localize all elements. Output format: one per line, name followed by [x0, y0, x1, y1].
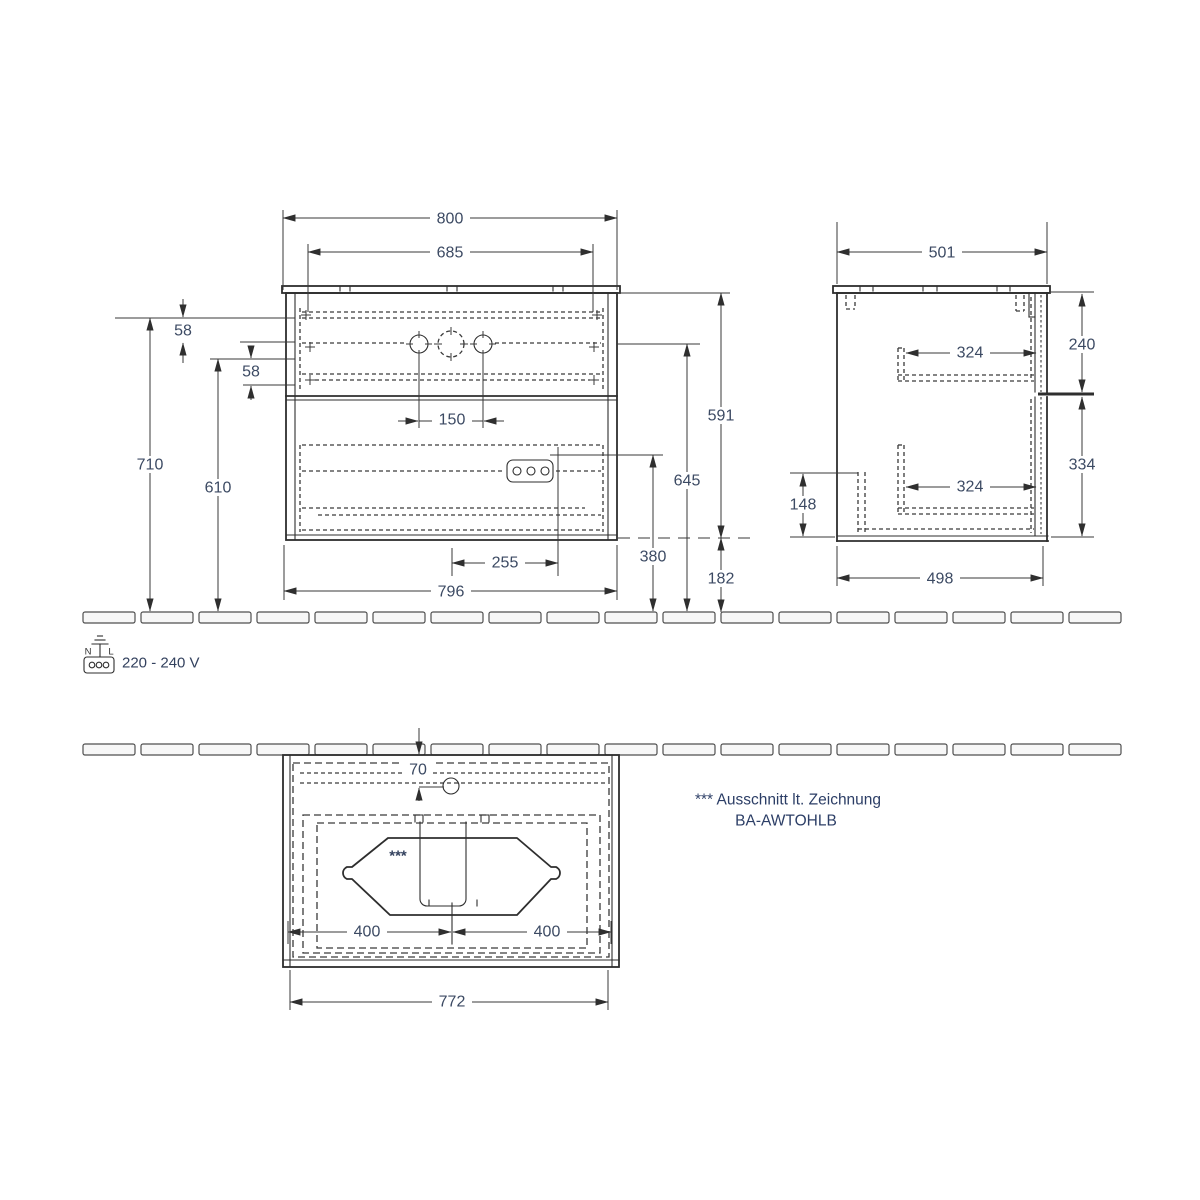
dim-top-front-width: 772	[439, 994, 466, 1011]
dim-front-socket-offset: 255	[492, 555, 519, 572]
dim-front-height-carcass: 591	[708, 408, 735, 425]
power-supply-symbol: N L 220 - 240 V	[84, 636, 200, 673]
dim-front-carcass-width: 796	[438, 584, 465, 601]
dim-front-offset-top: 58	[174, 323, 192, 340]
side-upper-runner	[898, 297, 1034, 381]
internal-socket	[507, 460, 553, 482]
side-view-dimensions	[790, 222, 1094, 586]
dim-side-depth-bottom: 498	[927, 571, 954, 588]
side-view	[790, 286, 1094, 541]
dim-front-tap-spacing: 150	[439, 412, 466, 429]
dim-front-height-inner: 610	[205, 480, 232, 497]
dim-side-lower-height: 334	[1069, 457, 1096, 474]
dim-side-depth-top: 501	[929, 245, 956, 262]
dim-front-height-total: 710	[137, 457, 164, 474]
floor-tile-strip	[83, 612, 1121, 623]
terminal-l-label: L	[108, 647, 113, 658]
side-countertop	[833, 286, 1050, 293]
technical-drawing-page: N L 220 - 240 V 800	[0, 0, 1200, 1200]
cutout-note: *** Ausschnitt lt. Zeichnung BA-AWTOHLB	[695, 792, 881, 830]
socket-plug-icon	[84, 657, 114, 673]
dim-top-center-left: 400	[354, 924, 381, 941]
dim-front-bottom-gap: 182	[708, 571, 735, 588]
dim-top-tap-offset: 70	[409, 762, 427, 779]
dim-side-upper-height: 240	[1069, 337, 1096, 354]
terminal-n-label: N	[85, 647, 92, 658]
dim-front-offset-mid: 58	[242, 364, 260, 381]
top-tap-hole	[443, 778, 459, 794]
front-countertop	[282, 286, 620, 293]
ground-icon	[92, 636, 108, 656]
dim-front-overall-width: 800	[437, 211, 464, 228]
side-hinge-details	[846, 293, 1035, 317]
note-line-2: BA-AWTOHLB	[735, 813, 837, 830]
front-left-reference-lines	[115, 318, 295, 385]
cutout-marker: ***	[389, 848, 407, 865]
dim-top-center-right: 400	[534, 924, 561, 941]
dim-side-rear-clearance: 148	[790, 497, 817, 514]
vanity-dimension-drawing: N L 220 - 240 V 800	[0, 0, 1200, 1200]
dim-side-upper-depth: 324	[957, 345, 984, 362]
side-door	[1035, 293, 1047, 541]
note-line-1: *** Ausschnitt lt. Zeichnung	[695, 792, 881, 809]
basin-cutout	[415, 815, 489, 906]
dimension-labels: 800 685 58 58 710 610 150 591 645 380 18…	[137, 211, 1096, 1011]
dim-front-inner-width: 685	[437, 245, 464, 262]
top-view	[283, 755, 619, 967]
side-lower-runner	[858, 399, 1034, 535]
dim-front-height-socket: 380	[640, 549, 667, 566]
front-upper-drawer-hidden	[300, 308, 603, 390]
top-view-outline	[283, 755, 619, 967]
voltage-label: 220 - 240 V	[122, 655, 200, 672]
dim-side-lower-depth: 324	[957, 479, 984, 496]
wall-tile-strip	[83, 744, 1121, 755]
dim-front-height-tap: 645	[674, 473, 701, 490]
